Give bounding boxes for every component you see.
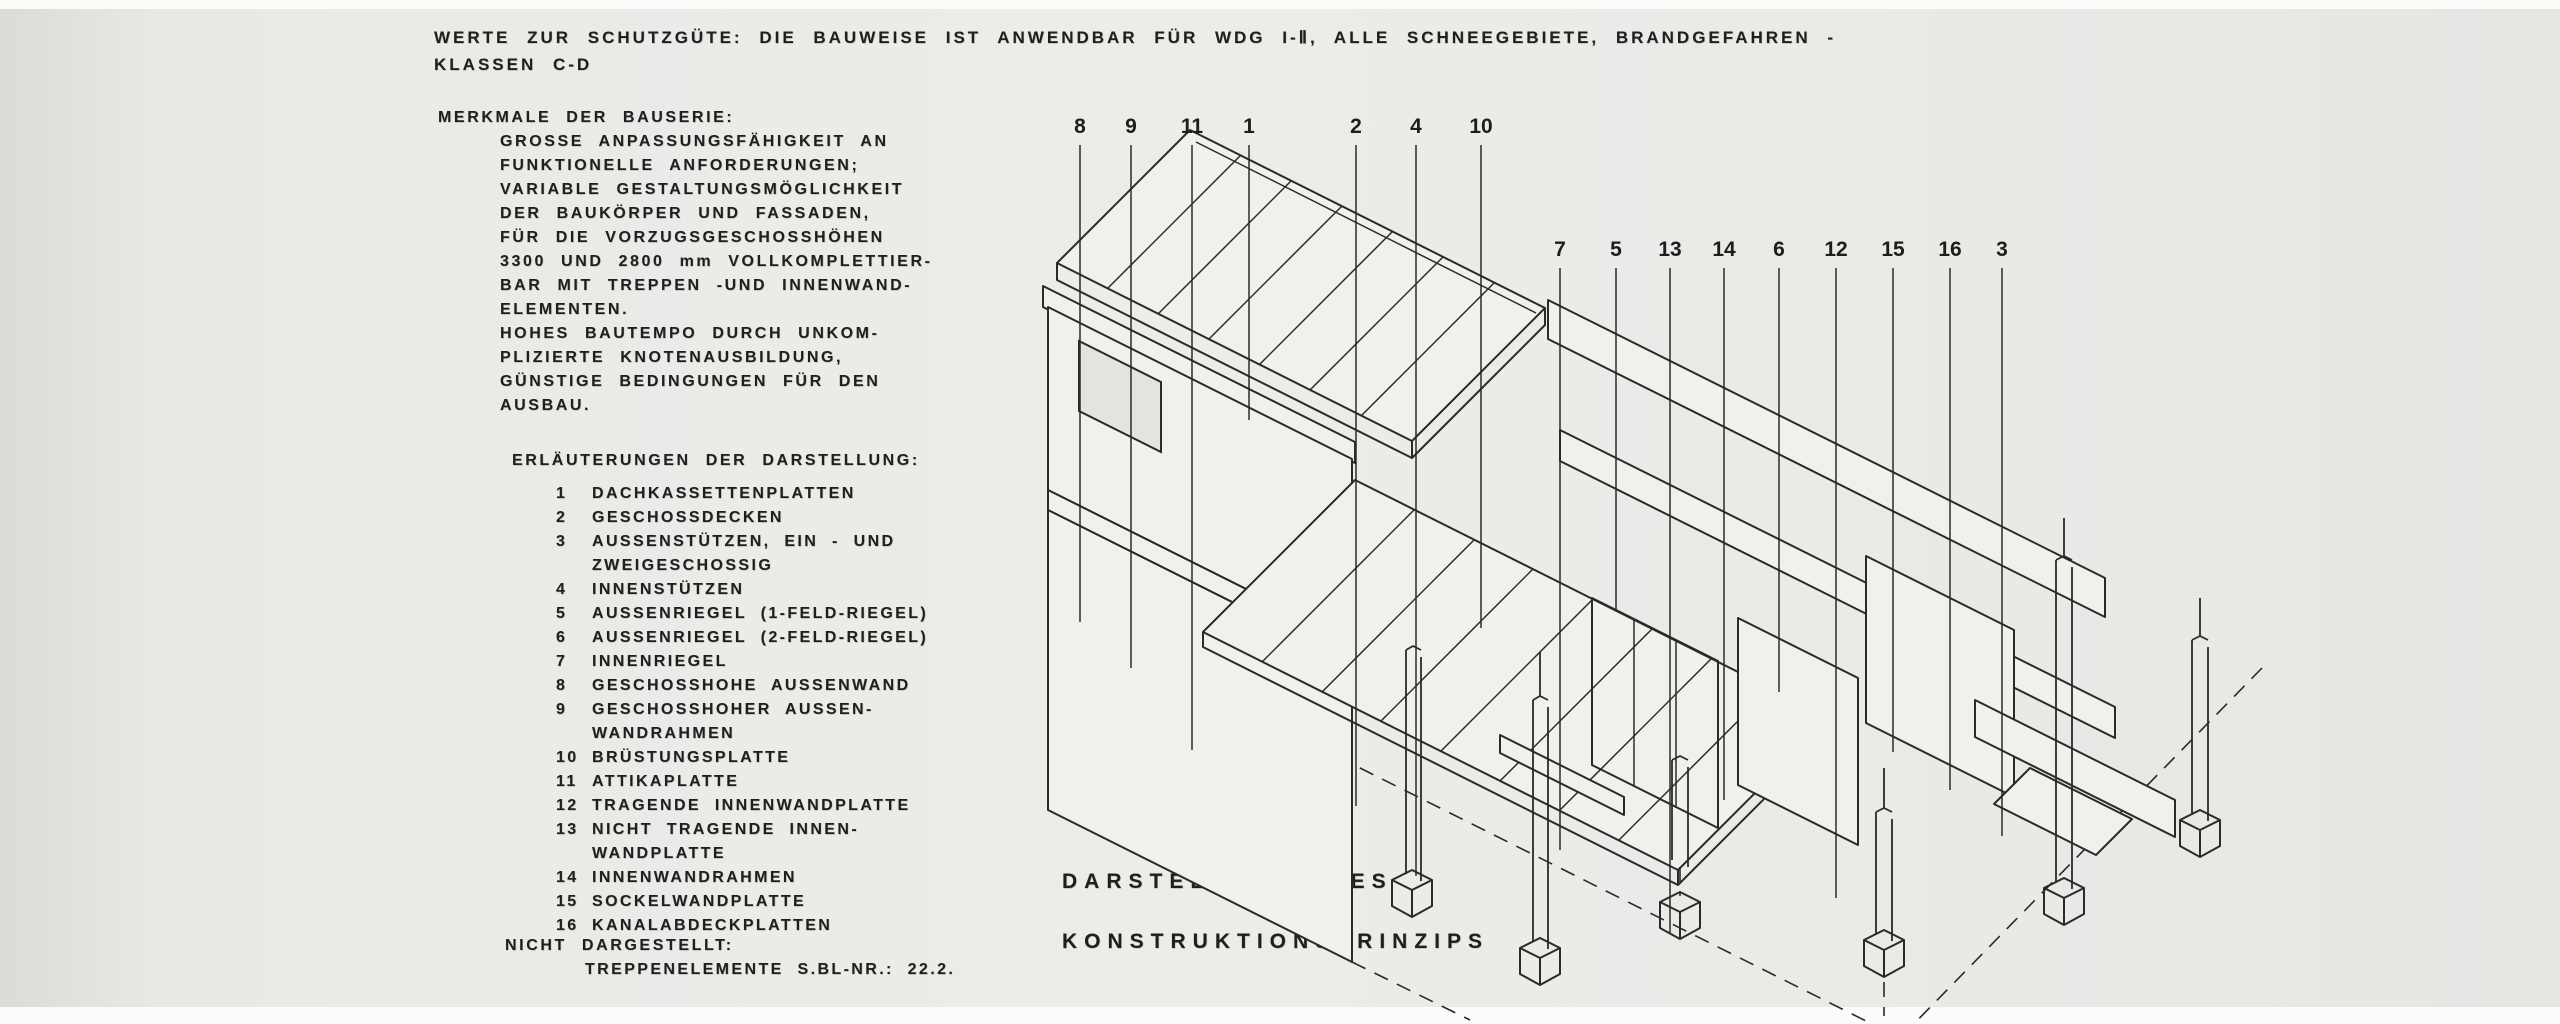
callout-number-8: 8 <box>1074 115 1086 138</box>
callout-number-14: 14 <box>1712 238 1736 261</box>
callout-number-1: 1 <box>1243 115 1255 138</box>
construction-principle-drawing: 89111241075131461215163 <box>0 0 2560 1024</box>
callout-number-7: 7 <box>1554 238 1566 261</box>
callout-number-4: 4 <box>1410 115 1422 138</box>
callout-number-2: 2 <box>1350 115 1362 138</box>
callout-number-13: 13 <box>1658 238 1681 261</box>
callout-number-6: 6 <box>1773 238 1785 261</box>
scanned-document-page: { "page": { "background": "#ebeae7", "in… <box>0 0 2560 1024</box>
callout-number-5: 5 <box>1610 238 1622 261</box>
callout-number-9: 9 <box>1125 115 1137 138</box>
callout-number-11: 11 <box>1181 115 1204 138</box>
callout-number-10: 10 <box>1469 115 1492 138</box>
callout-number-12: 12 <box>1824 238 1847 261</box>
callout-number-3: 3 <box>1996 238 2008 261</box>
callout-number-16: 16 <box>1938 238 1961 261</box>
callout-number-15: 15 <box>1881 238 1905 261</box>
